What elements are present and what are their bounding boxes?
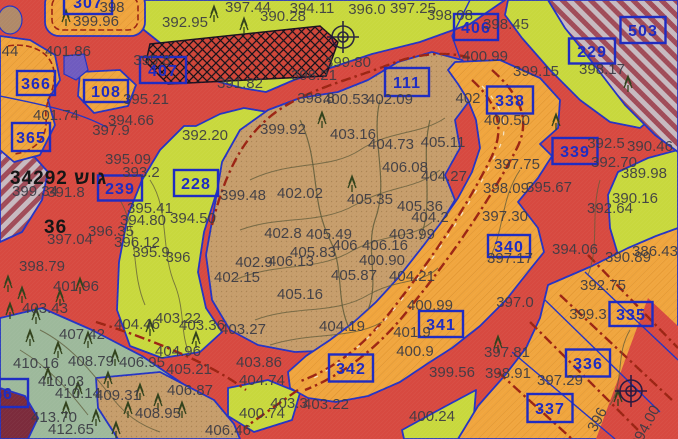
parcel-number: 228 <box>181 176 211 193</box>
elevation-label: 402.09 <box>367 91 413 108</box>
elevation-label: 404.27 <box>421 168 467 185</box>
parcel-number: 56 <box>0 386 13 403</box>
elevation-label: 406 <box>332 237 357 254</box>
parcel-number: 108 <box>91 84 121 101</box>
elevation-label: 410.16 <box>13 355 59 372</box>
elevation-label: 392.75 <box>580 277 626 294</box>
elevation-label: 397.75 <box>494 156 540 173</box>
elevation-label: 395.67 <box>526 179 572 196</box>
elevation-label: 396 <box>165 249 190 266</box>
elevation-label: 398.45 <box>483 16 529 33</box>
elevation-label: 401.74 <box>33 107 79 124</box>
elevation-label: 398.17 <box>579 61 625 78</box>
elevation-label: 409.31 <box>95 387 141 404</box>
elevation-label: 390.46 <box>627 138 673 155</box>
elevation-label: 410.14 <box>55 385 101 402</box>
elevation-label: 44 <box>2 43 19 60</box>
elevation-label: 406.95 <box>119 354 165 371</box>
elevation-label: 398.09 <box>483 180 529 197</box>
elevation-label: 399.96 <box>73 13 119 30</box>
elevation-label: 404.73 <box>368 136 414 153</box>
elevation-label: 400.53 <box>323 91 369 108</box>
elevation-label: 404.46 <box>114 316 160 333</box>
block-secondary-label: 36 <box>44 217 67 238</box>
elevation-label: 400.99 <box>462 48 508 65</box>
block-number-label: 34292 גוש <box>10 168 107 189</box>
elevation-label: 392.64 <box>587 200 633 217</box>
elevation-label: 399.56 <box>429 364 475 381</box>
elevation-label: 405.11 <box>421 134 466 151</box>
elevation-label: 403.36 <box>179 317 225 334</box>
elevation-label: 397.81 <box>484 344 530 361</box>
elevation-label: 403.86 <box>236 354 282 371</box>
parcel-number: 335 <box>616 307 646 324</box>
parcel-number: 338 <box>495 93 525 110</box>
elevation-label: 407.42 <box>59 326 105 343</box>
elevation-label: 392.95 <box>162 14 208 31</box>
parcel-number: 366 <box>21 76 51 93</box>
elevation-label: 403.27 <box>220 321 266 338</box>
elevation-label: 408.79 <box>68 353 114 370</box>
elevation-label: 393.2 <box>122 164 160 181</box>
elevation-label: 405.87 <box>331 267 377 284</box>
parcel-number: 337 <box>535 401 565 418</box>
elevation-label: 400.74 <box>239 405 285 422</box>
elevation-label: 395.21 <box>123 91 169 108</box>
parcel-number: 239 <box>105 181 135 198</box>
elevation-label: 406.87 <box>167 382 213 399</box>
elevation-label: 401.86 <box>45 43 91 60</box>
parcel-number: 503 <box>628 23 658 40</box>
elevation-label: 400.50 <box>484 112 530 129</box>
elevation-label: 390.89 <box>605 249 651 266</box>
elevation-label: 398.08 <box>427 7 473 24</box>
elevation-label: 398.91 <box>485 365 531 382</box>
elevation-label: 403.43 <box>22 300 68 317</box>
elevation-label: 392.20 <box>182 127 228 144</box>
parcel-number: 339 <box>560 144 590 161</box>
elevation-label: 399.92 <box>260 121 306 138</box>
elevation-label: 397.0 <box>496 294 534 311</box>
map-canvas: 3074065032294071113383661083652392283393… <box>0 0 678 439</box>
elevation-label: 396.0 <box>348 1 386 18</box>
elevation-label: 399.80 <box>325 54 371 71</box>
parcel-number: 336 <box>573 356 603 373</box>
elevation-label: 391.82 <box>217 75 263 92</box>
elevation-label: 405.35 <box>347 191 393 208</box>
elevation-label: 394.50 <box>170 210 216 227</box>
elevation-label: 399.15 <box>513 63 559 80</box>
elevation-label: 389.98 <box>621 165 667 182</box>
elevation-label: 392.5 <box>587 135 625 152</box>
elevation-label: 404.19 <box>319 318 365 335</box>
elevation-label: 394.06 <box>552 241 598 258</box>
elevation-label: 402.8 <box>264 225 302 242</box>
elevation-label: 400.24 <box>409 408 455 425</box>
elevation-label: 397.30 <box>482 208 528 225</box>
elevation-label: 405.16 <box>277 286 323 303</box>
elevation-label: 400.99 <box>407 297 453 314</box>
elevation-label: 402 <box>455 90 480 107</box>
elevation-label: 399.48 <box>220 187 266 204</box>
parcel-number: 229 <box>577 44 607 61</box>
elevation-label: 406.46 <box>205 422 251 439</box>
elevation-label: 395.9 <box>132 244 170 261</box>
elevation-label: 402.15 <box>214 269 260 286</box>
parcel-number: 307 <box>73 0 103 12</box>
elevation-label: 405.21 <box>166 361 212 378</box>
elevation-label: 395.8 <box>133 52 171 69</box>
elevation-label: 400.9 <box>396 343 434 360</box>
elevation-label: 412.65 <box>48 421 94 438</box>
parcel-number: 342 <box>336 361 366 378</box>
cadastral-map[interactable]: 3074065032294071113383661083652392283393… <box>0 0 678 439</box>
elevation-label: 408.95 <box>135 405 181 422</box>
parcel-number: 365 <box>16 130 46 147</box>
elevation-label: 401.9 <box>393 324 431 341</box>
elevation-label: 397.9 <box>92 122 130 139</box>
parcel-number: 111 <box>393 75 421 92</box>
elevation-label: 404.21 <box>389 268 435 285</box>
elevation-label: 394.11 <box>290 0 335 17</box>
elevation-label: 406.13 <box>268 253 314 270</box>
elevation-label: 401.96 <box>53 278 99 295</box>
elevation-label: 397.17 <box>487 250 533 267</box>
elevation-label: 404.74 <box>239 372 285 389</box>
elevation-label: 402.02 <box>277 185 323 202</box>
elevation-label: 398.79 <box>19 258 65 275</box>
elevation-label: 403.22 <box>303 396 349 413</box>
elevation-label: 397.29 <box>537 372 583 389</box>
elevation-label: 404.2 <box>411 209 449 226</box>
elevation-label: 399.3 <box>569 306 607 323</box>
